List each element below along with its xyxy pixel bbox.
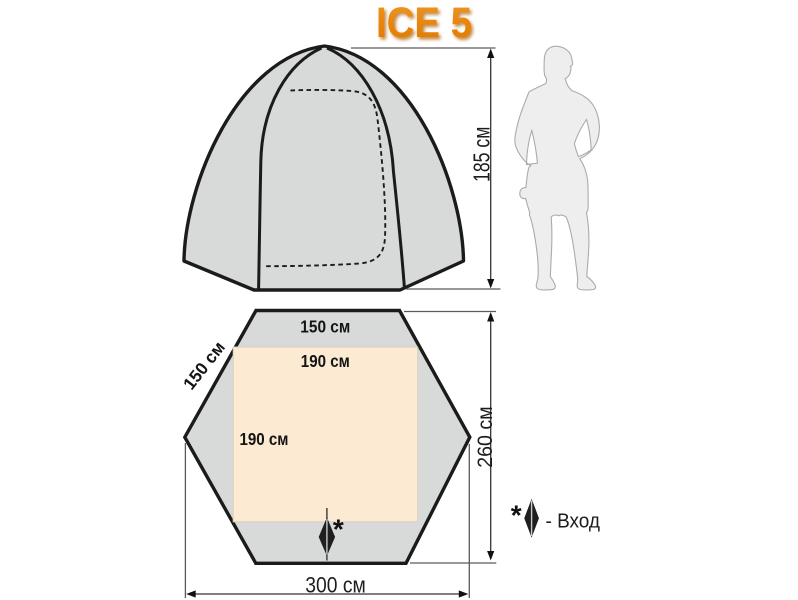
svg-text:185 см: 185 см (469, 127, 495, 182)
svg-text:- Вход: - Вход (546, 509, 601, 532)
svg-text:300 см: 300 см (305, 573, 366, 598)
svg-text:190 см: 190 см (240, 429, 289, 449)
svg-text:*: * (333, 514, 344, 545)
svg-text:*: * (511, 499, 522, 530)
svg-text:ICE 5: ICE 5 (376, 0, 472, 47)
svg-text:260 см: 260 см (473, 406, 497, 467)
svg-text:190 см: 190 см (301, 351, 350, 371)
svg-text:150 см: 150 см (300, 316, 350, 336)
